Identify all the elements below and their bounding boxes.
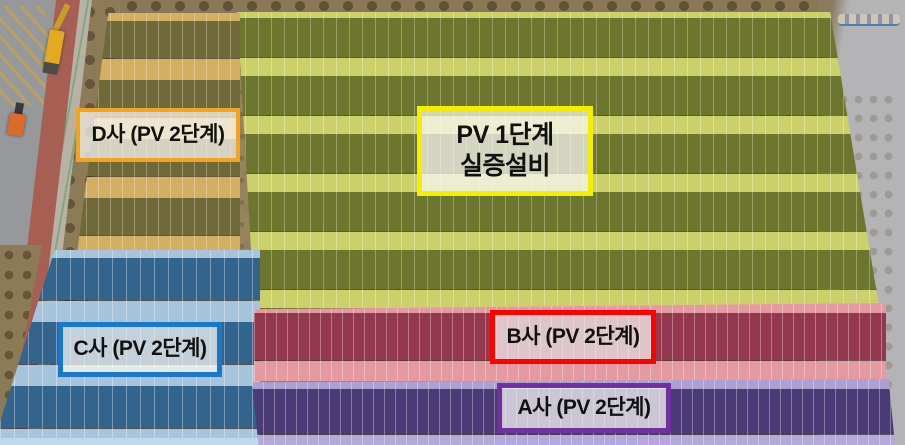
label-company-d-text: D사 (PV 2단계) bbox=[92, 122, 225, 148]
label-company-c: C사 (PV 2단계) bbox=[58, 322, 222, 377]
label-pv-phase1-line1: PV 1단계 bbox=[456, 120, 553, 151]
label-pv-phase1-line2: 실증설비 bbox=[460, 151, 550, 182]
label-company-a-text: A사 (PV 2단계) bbox=[518, 395, 651, 421]
label-company-a: A사 (PV 2단계) bbox=[497, 383, 671, 433]
crane-cab bbox=[42, 62, 59, 75]
label-company-b-text: B사 (PV 2단계) bbox=[507, 324, 640, 350]
label-pv-phase1: PV 1단계 실증설비 bbox=[417, 106, 593, 196]
forklift-body bbox=[7, 112, 27, 136]
label-company-b: B사 (PV 2단계) bbox=[490, 310, 656, 364]
aerial-photo: D사 (PV 2단계) PV 1단계 실증설비 C사 (PV 2단계) B사 (… bbox=[0, 0, 905, 445]
label-company-c-text: C사 (PV 2단계) bbox=[74, 336, 207, 362]
label-company-d: D사 (PV 2단계) bbox=[76, 108, 240, 162]
tree-row-top bbox=[120, 0, 880, 14]
concrete-blocks bbox=[838, 14, 900, 26]
